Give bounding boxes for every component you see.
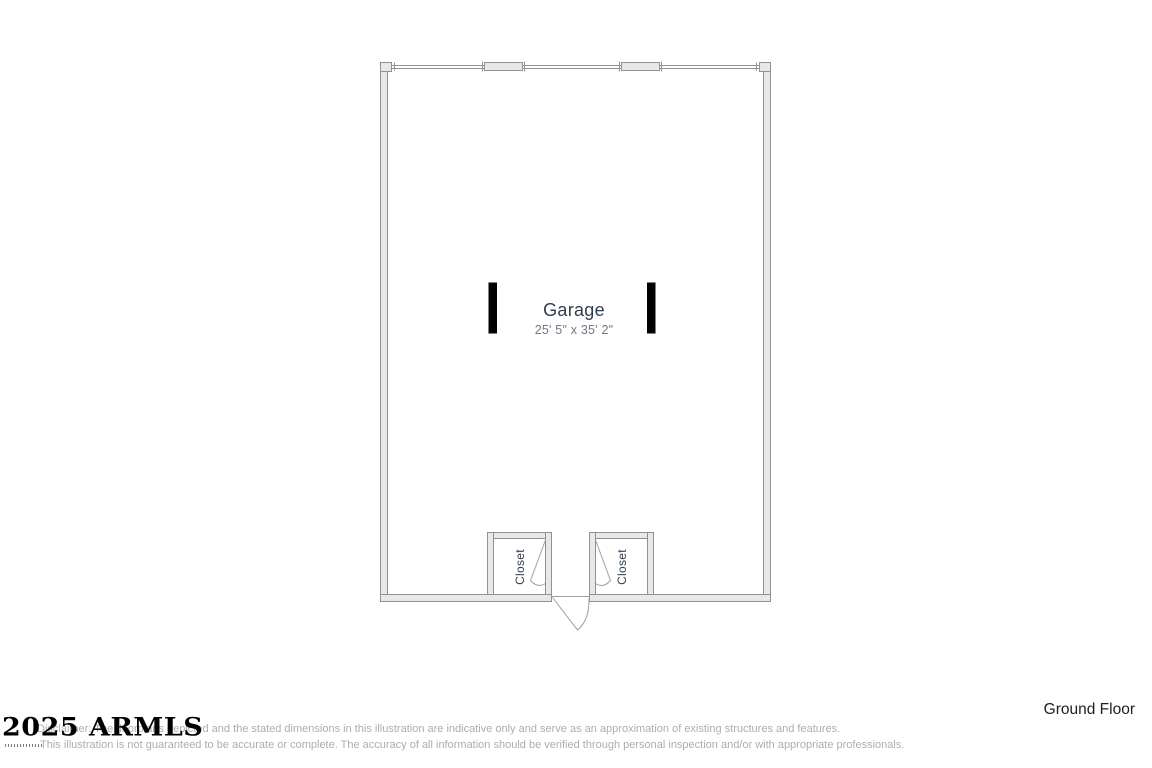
- wall-corner-post-left: [381, 63, 392, 72]
- floor-plan-drawing: [0, 0, 1152, 768]
- garage-door-opening: [392, 63, 760, 71]
- wall-corner-post-right: [760, 63, 771, 72]
- garage-room-label: Garage: [474, 300, 674, 321]
- entry-door-swing: [553, 598, 590, 631]
- window-icon: [620, 62, 662, 72]
- closet-left-door-swing: [531, 540, 546, 585]
- watermark-fineprint: [5, 744, 42, 747]
- floor-name-label: Ground Floor: [1023, 701, 1135, 719]
- garage-room-dimensions: 25' 5" x 35' 2": [474, 323, 674, 337]
- floor-plan-page: Garage 25' 5" x 35' 2" Closet Closet Gro…: [0, 0, 1152, 768]
- closet-right-door-swing: [596, 540, 611, 585]
- closet-right-label: Closet: [614, 537, 630, 597]
- window-icon: [483, 62, 525, 72]
- wall-right: [764, 65, 771, 602]
- wall-left: [381, 65, 388, 602]
- armls-watermark: 2025 ARMLS: [2, 713, 203, 742]
- closet-left-label: Closet: [512, 537, 528, 597]
